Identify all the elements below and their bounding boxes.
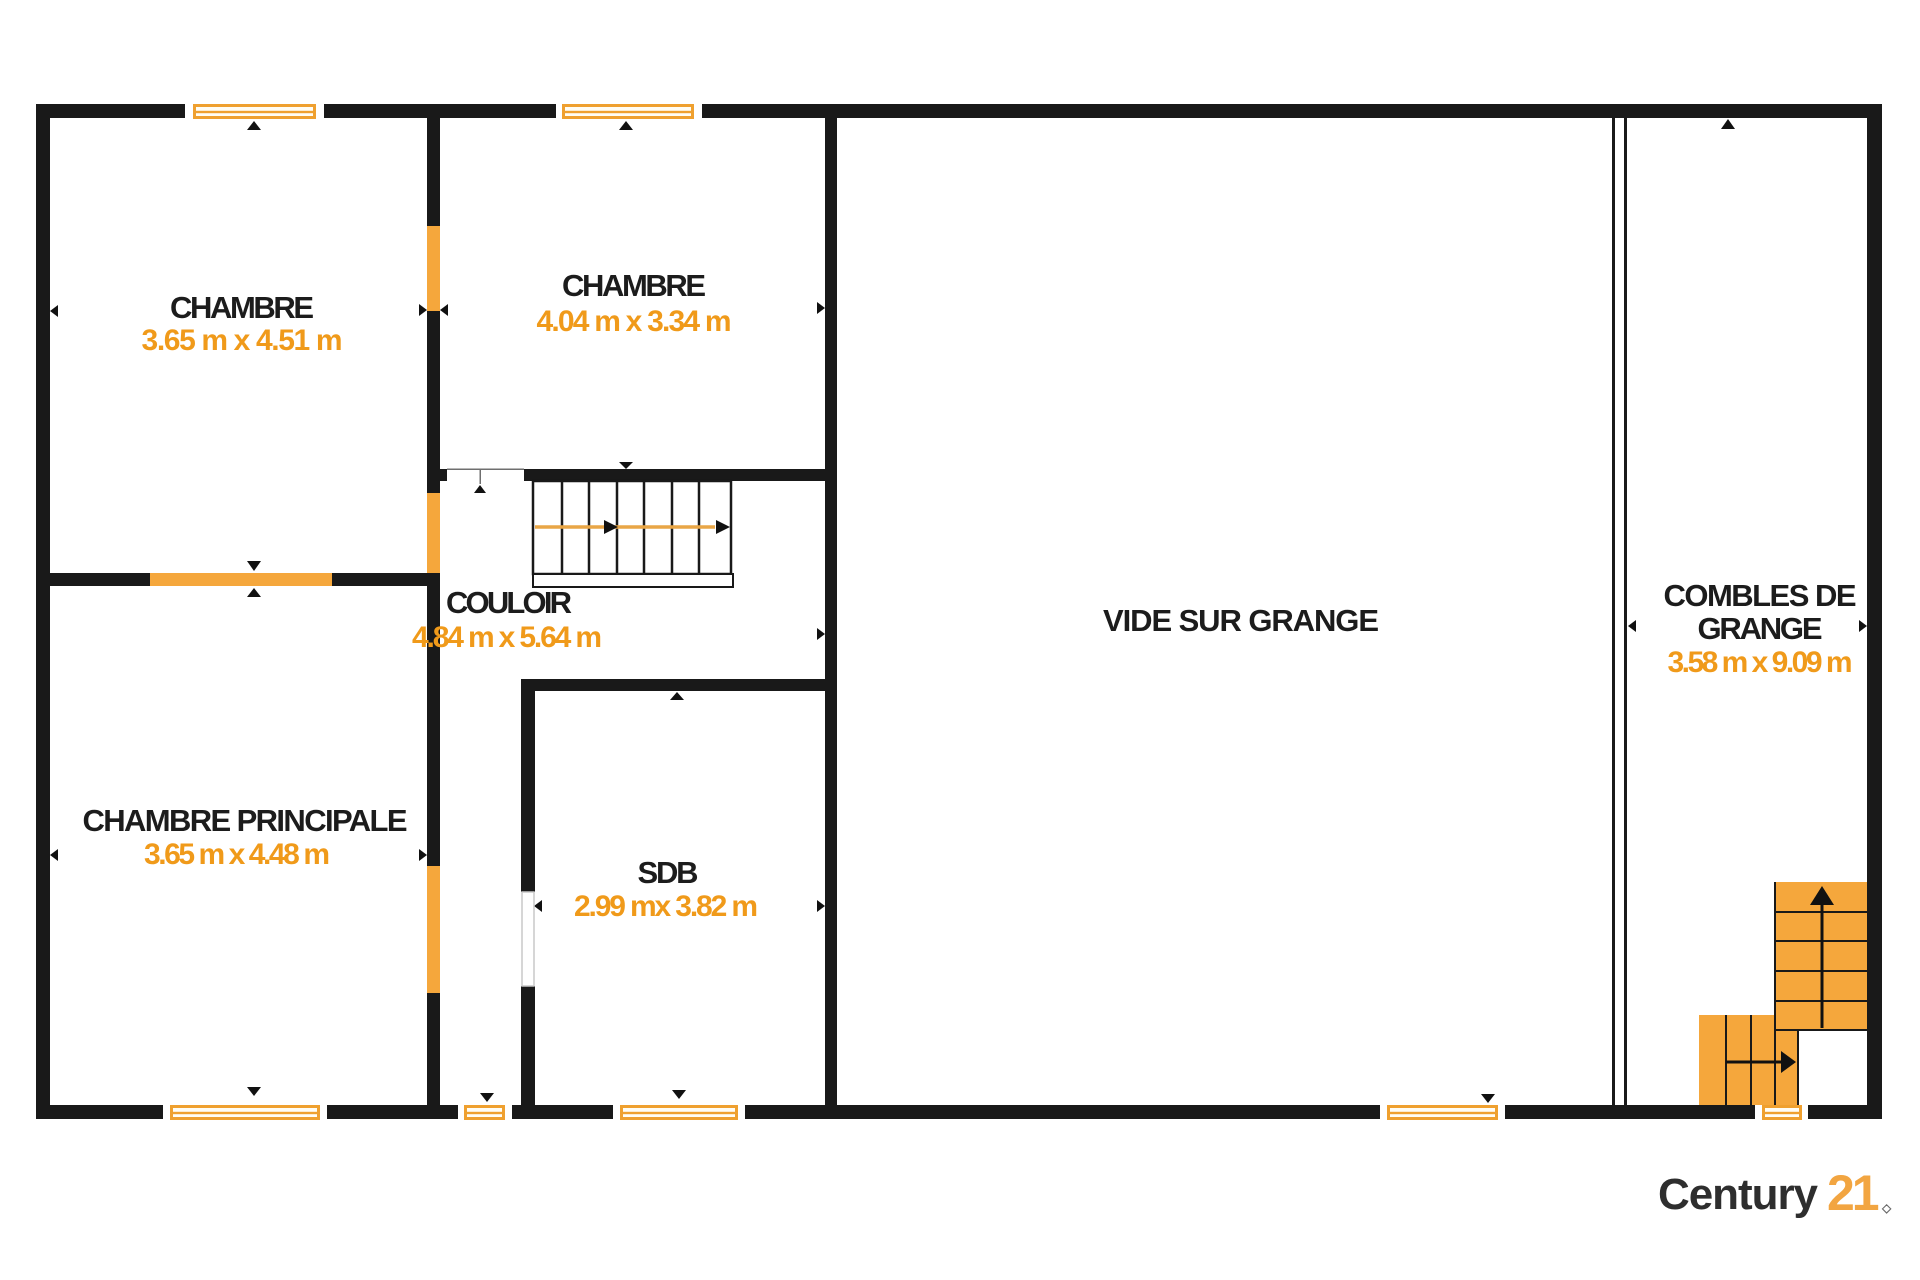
svg-text:21: 21 — [1827, 1165, 1879, 1221]
svg-text:CHAMBRE: CHAMBRE — [170, 290, 314, 325]
svg-text:CHAMBRE: CHAMBRE — [562, 268, 706, 303]
svg-text:3.65 m x 4.51 m: 3.65 m x 4.51 m — [142, 324, 343, 357]
svg-text:COMBLES DE: COMBLES DE — [1664, 578, 1857, 613]
svg-text:2.99 mx 3.82 m: 2.99 mx 3.82 m — [574, 890, 758, 923]
svg-text:4.04 m x 3.34 m: 4.04 m x 3.34 m — [537, 305, 732, 338]
svg-text:3.58 m x 9.09 m: 3.58 m x 9.09 m — [1668, 646, 1853, 679]
svg-text:◇: ◇ — [1881, 1201, 1892, 1215]
svg-text:3.65 m x 4.48 m: 3.65 m x 4.48 m — [144, 838, 330, 871]
svg-text:CHAMBRE PRINCIPALE: CHAMBRE PRINCIPALE — [83, 803, 408, 838]
svg-text:GRANGE: GRANGE — [1698, 611, 1823, 646]
svg-text:SDB: SDB — [638, 855, 699, 890]
svg-text:COULOIR: COULOIR — [446, 585, 572, 620]
svg-text:VIDE SUR GRANGE: VIDE SUR GRANGE — [1103, 603, 1379, 638]
svg-text:Century: Century — [1658, 1170, 1819, 1219]
svg-text:4.84 m x 5.64 m: 4.84 m x 5.64 m — [412, 621, 602, 654]
